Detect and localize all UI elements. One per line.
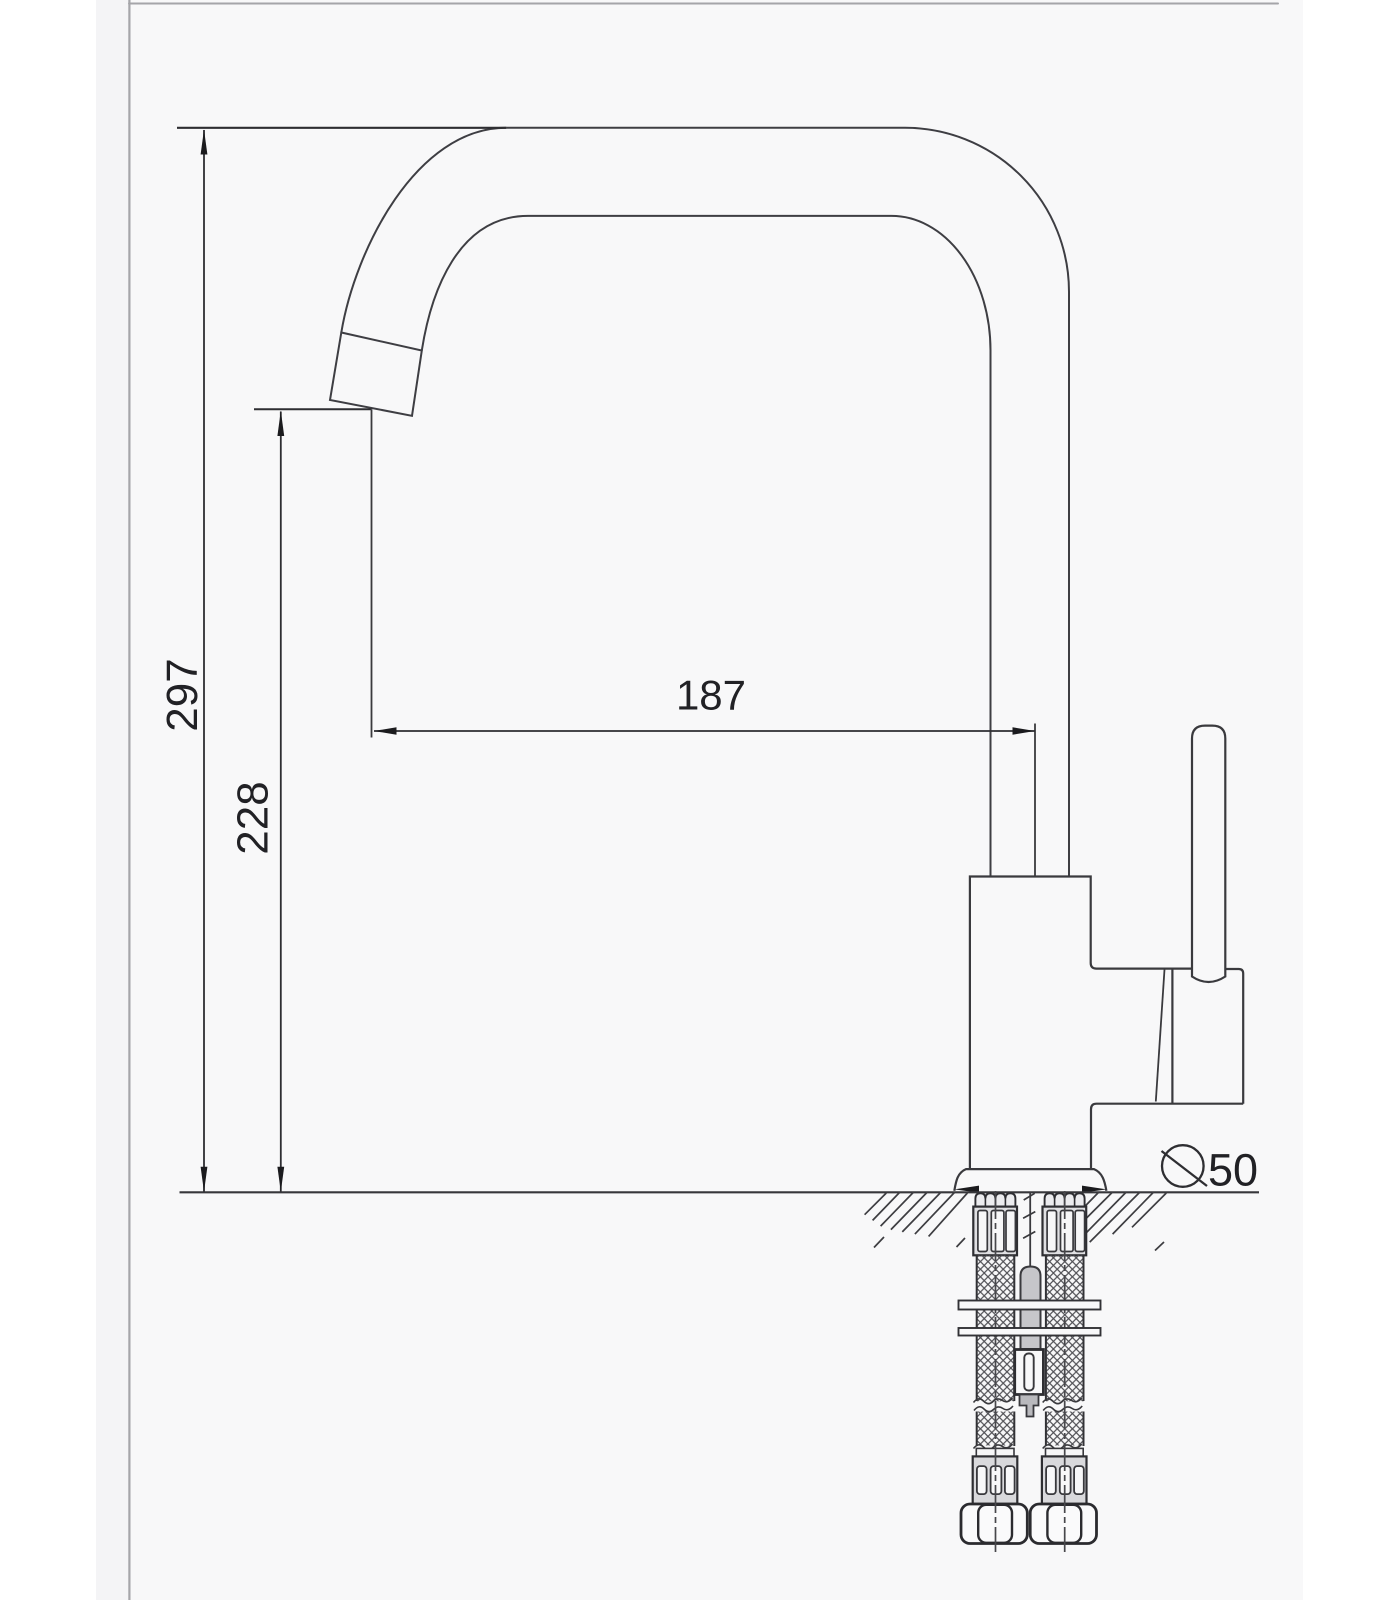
svg-text:228: 228: [228, 781, 277, 854]
svg-text:297: 297: [158, 658, 207, 731]
svg-text:50: 50: [1208, 1145, 1258, 1196]
svg-text:187: 187: [676, 672, 746, 719]
